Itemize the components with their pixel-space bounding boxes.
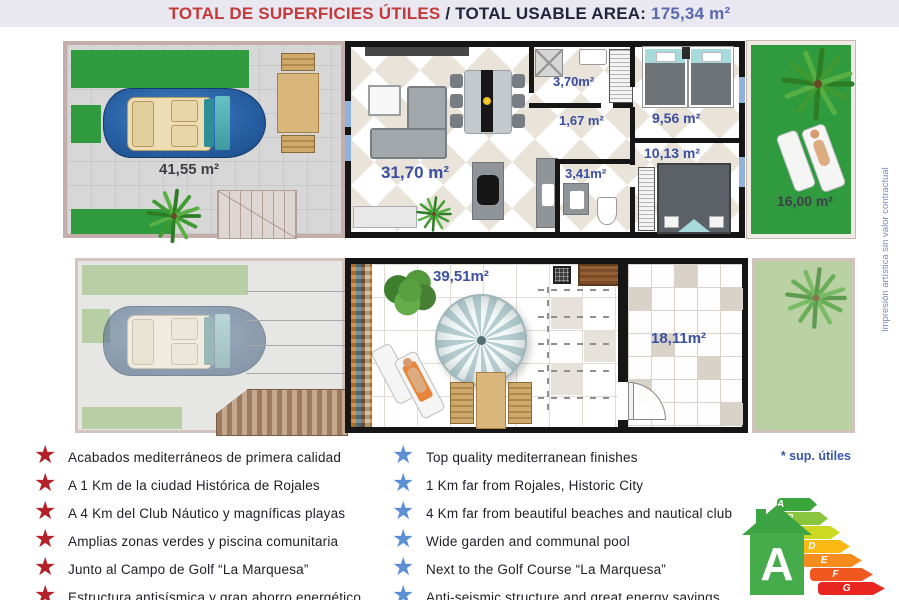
section-line bbox=[246, 373, 346, 374]
kitchen-sink bbox=[541, 183, 555, 207]
vanity-sink bbox=[563, 183, 589, 215]
footnote: * sup. útiles bbox=[751, 449, 851, 463]
star-icon: ★ bbox=[34, 555, 56, 580]
bathroom-sink bbox=[579, 49, 607, 65]
bathroom-wall bbox=[529, 103, 601, 108]
bedroom-wall bbox=[630, 187, 635, 232]
floor-tile bbox=[721, 403, 743, 425]
floor-tile bbox=[551, 363, 583, 395]
grass-strip bbox=[82, 407, 182, 429]
pillow bbox=[664, 216, 679, 228]
grass-strip bbox=[71, 105, 101, 143]
outdoor-table bbox=[476, 372, 506, 429]
window bbox=[345, 101, 351, 127]
car-seat bbox=[171, 343, 197, 365]
feature-list-english: ★Top quality mediterranean finishes ★1 K… bbox=[392, 447, 752, 600]
section-line bbox=[246, 345, 346, 346]
car-windshield bbox=[215, 96, 230, 149]
window bbox=[739, 157, 745, 187]
bed-blanket bbox=[678, 219, 710, 232]
area-label-room: 18,11m² bbox=[651, 330, 706, 347]
pillow bbox=[656, 52, 676, 62]
feature-list-spanish: ★Acabados mediterráneos de primera calid… bbox=[34, 447, 394, 600]
bathroom-wall bbox=[529, 47, 534, 93]
house-ground-floor: 31,70 m² 3,70m² 1,67 m² 3,41m² bbox=[345, 41, 745, 238]
car-dashboard bbox=[204, 99, 214, 147]
convertible-car-faded bbox=[103, 306, 266, 376]
floor-tile bbox=[675, 265, 697, 287]
single-bed bbox=[643, 47, 687, 107]
shower bbox=[535, 49, 563, 77]
rear-garden-faded bbox=[752, 258, 855, 433]
area-label-hall: 1,67 m² bbox=[559, 113, 604, 128]
outdoor-chair bbox=[508, 382, 532, 424]
umbrella-pole bbox=[477, 336, 486, 345]
area-label-garden: 16,00 m² bbox=[777, 193, 833, 209]
star-icon: ★ bbox=[392, 471, 414, 496]
feature-item: ★Next to the Golf Course “La Marquesa” bbox=[392, 559, 752, 585]
convertible-car bbox=[103, 88, 266, 158]
energy-arrow-a: A bbox=[777, 498, 817, 511]
driveway-below-faded bbox=[75, 258, 345, 433]
star-icon: ★ bbox=[392, 499, 414, 524]
floor-tile bbox=[721, 288, 743, 310]
single-bed bbox=[689, 47, 733, 107]
feature-text: 4 Km far from beautiful beaches and naut… bbox=[426, 506, 732, 521]
energy-arrow-f: F bbox=[810, 568, 873, 581]
palm-tree bbox=[145, 187, 203, 245]
feature-text: Acabados mediterráneos de primera calida… bbox=[68, 450, 341, 465]
palm-tree bbox=[783, 265, 849, 331]
feature-text: A 4 Km del Club Náutico y magníficas pla… bbox=[68, 506, 345, 521]
kitchen-island bbox=[472, 162, 504, 220]
garden-chair bbox=[281, 53, 315, 71]
room-wall bbox=[618, 264, 628, 382]
garden-table bbox=[277, 73, 319, 133]
area-label-bath-top: 3,70m² bbox=[553, 74, 594, 89]
feature-item: ★1 Km far from Rojales, Historic City bbox=[392, 475, 752, 501]
dining-chair bbox=[512, 74, 525, 88]
feature-item: ★Junto al Campo de Golf “La Marquesa” bbox=[34, 559, 394, 585]
star-icon: ★ bbox=[392, 555, 414, 580]
star-icon: ★ bbox=[392, 527, 414, 552]
pergola-shadow-line bbox=[538, 397, 616, 399]
area-label-parking: 41,55 m² bbox=[159, 161, 219, 178]
car-windshield bbox=[215, 314, 230, 367]
pergola-slats bbox=[216, 389, 348, 436]
feature-text: Wide garden and communal pool bbox=[426, 534, 630, 549]
area-label-bedroom-top: 9,56 m² bbox=[652, 110, 700, 126]
dining-chair bbox=[450, 94, 463, 108]
nightstand bbox=[682, 47, 690, 59]
car-rear-bench bbox=[132, 319, 154, 366]
star-icon: ★ bbox=[392, 443, 414, 468]
double-bed bbox=[657, 163, 731, 234]
car-dashboard bbox=[204, 317, 214, 365]
dining-chair bbox=[512, 94, 525, 108]
flower-centerpiece bbox=[483, 97, 491, 105]
house-upper-floor: 39,51m² bbox=[345, 258, 748, 433]
upper-floor-plan: 39,51m² bbox=[63, 258, 855, 433]
feature-item: ★Amplias zonas verdes y piscina comunita… bbox=[34, 531, 394, 557]
section-line bbox=[246, 291, 346, 292]
feature-item: ★Wide garden and communal pool bbox=[392, 531, 752, 557]
feature-text: Next to the Golf Course “La Marquesa” bbox=[426, 562, 666, 577]
feature-text: Amplias zonas verdes y piscina comunitar… bbox=[68, 534, 338, 549]
watermark: Impresión artística sin valor contractua… bbox=[880, 167, 891, 332]
car-seat bbox=[171, 125, 197, 147]
area-label-bedroom-bottom: 10,13 m² bbox=[644, 145, 700, 161]
feature-item: ★A 1 Km de la ciudad Histórica de Rojale… bbox=[34, 475, 394, 501]
floor-tile bbox=[629, 288, 651, 310]
feature-item: ★4 Km far from beautiful beaches and nau… bbox=[392, 503, 752, 529]
grass-strip bbox=[82, 265, 248, 295]
bedroom-wall bbox=[630, 107, 635, 165]
stairs bbox=[217, 190, 297, 239]
armchair bbox=[368, 85, 401, 116]
feature-item: ★Estructura antisísmica y gran ahorro en… bbox=[34, 587, 394, 600]
driveway: 41,55 m² bbox=[63, 41, 345, 238]
indoor-plant bbox=[415, 195, 453, 233]
feature-item: ★Top quality mediterranean finishes bbox=[392, 447, 752, 473]
bedroom-wall bbox=[630, 47, 635, 87]
feature-text: Junto al Campo de Golf “La Marquesa” bbox=[68, 562, 309, 577]
feature-text: Anti-seismic structure and great energy … bbox=[426, 590, 720, 600]
title-english: TOTAL USABLE AREA: bbox=[455, 4, 651, 24]
brochure-page: TOTAL DE SUPERFICIES ÚTILES / TOTAL USAB… bbox=[0, 0, 899, 600]
floor-tile bbox=[698, 357, 720, 379]
area-label-bath-mid: 3,41m² bbox=[565, 166, 606, 181]
feature-item: ★Acabados mediterráneos de primera calid… bbox=[34, 447, 394, 473]
area-label-living: 31,70 m² bbox=[381, 163, 449, 183]
title-separator: / bbox=[440, 4, 455, 24]
section-line bbox=[246, 320, 346, 321]
outdoor-table-set bbox=[450, 372, 530, 427]
feature-text: Estructura antisísmica y gran ahorro ene… bbox=[68, 590, 361, 600]
star-icon: ★ bbox=[34, 499, 56, 524]
bedroom-divider-wall bbox=[630, 138, 739, 143]
palm-tree bbox=[779, 45, 857, 123]
energy-rating-label: A B C D E F G A bbox=[742, 483, 899, 600]
outdoor-chair bbox=[450, 382, 474, 424]
window bbox=[345, 135, 351, 161]
title-total-area: 175,34 m² bbox=[651, 4, 730, 24]
feature-text: A 1 Km de la ciudad Histórica de Rojales bbox=[68, 478, 320, 493]
star-icon: ★ bbox=[392, 583, 414, 600]
garden-chair bbox=[281, 135, 315, 153]
star-icon: ★ bbox=[34, 471, 56, 496]
dining-chair bbox=[512, 114, 525, 128]
drain-grate bbox=[553, 266, 571, 284]
wardrobe bbox=[638, 167, 655, 231]
tv-unit bbox=[365, 47, 469, 56]
car-rear-bench bbox=[132, 101, 154, 148]
star-icon: ★ bbox=[34, 583, 56, 600]
dining-chair bbox=[450, 114, 463, 128]
energy-arrow-g: G bbox=[818, 582, 885, 595]
energy-arrow-e: E bbox=[802, 554, 862, 567]
sofa bbox=[370, 128, 447, 159]
star-icon: ★ bbox=[34, 527, 56, 552]
feature-text: 1 Km far from Rojales, Historic City bbox=[426, 478, 643, 493]
star-icon: ★ bbox=[34, 443, 56, 468]
door-leaf bbox=[628, 382, 634, 420]
grass-strip bbox=[71, 50, 249, 88]
dining-set bbox=[450, 70, 530, 132]
person-sunbathing bbox=[809, 128, 821, 140]
floor-tile bbox=[551, 297, 583, 329]
pergola-shadow-line bbox=[547, 284, 549, 410]
car-seat bbox=[171, 100, 197, 122]
bathroom-sink bbox=[569, 190, 585, 210]
area-label-terrace: 39,51m² bbox=[433, 268, 489, 285]
room-wall bbox=[618, 420, 628, 427]
title-spanish: TOTAL DE SUPERFICIES ÚTILES bbox=[169, 4, 441, 24]
feature-text: Top quality mediterranean finishes bbox=[426, 450, 638, 465]
bush bbox=[379, 266, 441, 318]
person-body bbox=[812, 138, 832, 167]
feature-item: ★A 4 Km del Club Náutico y magníficas pl… bbox=[34, 503, 394, 529]
pergola-shadow-line bbox=[538, 370, 616, 372]
bench bbox=[353, 206, 417, 228]
mosaic-border bbox=[351, 264, 372, 427]
title-bar: TOTAL DE SUPERFICIES ÚTILES / TOTAL USAB… bbox=[0, 0, 899, 27]
dining-chair bbox=[450, 74, 463, 88]
bathroom-wall bbox=[555, 159, 633, 164]
cooktop bbox=[477, 175, 499, 205]
rear-garden: 16,00 m² bbox=[747, 41, 855, 238]
pergola-shadow-line bbox=[538, 343, 616, 345]
pergola-shadow-line bbox=[538, 316, 616, 318]
floor-tile bbox=[584, 330, 616, 362]
pillow bbox=[709, 216, 724, 228]
pillow bbox=[702, 52, 722, 62]
energy-rating-letter: A bbox=[750, 535, 804, 595]
bathroom-wall bbox=[555, 159, 560, 232]
ground-floor-plan: 41,55 m² bbox=[63, 41, 855, 238]
feature-item: ★Anti-seismic structure and great energy… bbox=[392, 587, 752, 600]
toilet bbox=[597, 197, 617, 225]
window bbox=[739, 77, 745, 103]
pergola-shadow-line bbox=[538, 289, 616, 291]
car-seat bbox=[171, 318, 197, 340]
